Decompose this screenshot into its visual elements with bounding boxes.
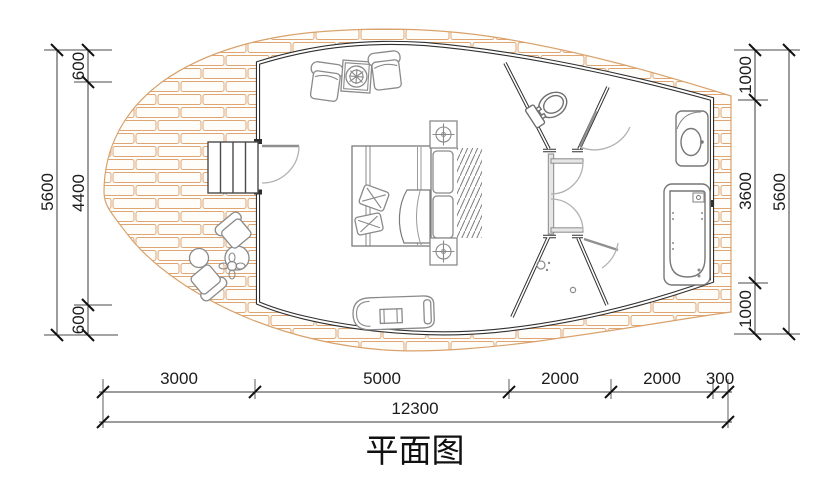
dim-bottom-2000-b: 2000 bbox=[643, 369, 681, 388]
dim-left-5600: 5600 bbox=[38, 173, 57, 211]
dim-right-5600: 5600 bbox=[770, 173, 789, 211]
headboard-cushion bbox=[433, 151, 453, 193]
dim-bottom-5000: 5000 bbox=[363, 369, 401, 388]
floor-plan-svg: 600 4400 600 5600 1000 3600 1000 5600 30… bbox=[0, 0, 837, 496]
dim-left-600-top: 600 bbox=[69, 52, 88, 80]
dim-right-1000-bottom: 1000 bbox=[736, 290, 755, 328]
double-bed bbox=[352, 146, 453, 246]
dim-bottom-300: 300 bbox=[706, 369, 734, 388]
dim-right-1000-top: 1000 bbox=[736, 56, 755, 94]
nightstand-bottom bbox=[430, 238, 457, 265]
entry-steps bbox=[208, 142, 258, 193]
side-table bbox=[341, 60, 372, 93]
dim-bottom-3000: 3000 bbox=[160, 369, 198, 388]
dim-bottom-12300: 12300 bbox=[391, 399, 438, 418]
dim-right-3600: 3600 bbox=[736, 172, 755, 210]
wash-basin bbox=[676, 111, 708, 166]
bedside-rug bbox=[457, 148, 482, 238]
dimension-right: 1000 3600 1000 5600 bbox=[734, 44, 800, 340]
headboard-cushion bbox=[433, 196, 453, 238]
nightstand-top bbox=[430, 121, 457, 148]
chaise-lounge bbox=[352, 296, 434, 331]
blanket bbox=[399, 190, 430, 243]
dimension-bottom: 3000 5000 2000 2000 300 12300 bbox=[97, 369, 734, 428]
floor-plan-page: 600 4400 600 5600 1000 3600 1000 5600 30… bbox=[0, 0, 837, 496]
drawing-title: 平面图 bbox=[366, 432, 465, 469]
bathtub bbox=[664, 184, 710, 285]
dim-bottom-2000-a: 2000 bbox=[541, 369, 579, 388]
dim-left-600-bottom: 600 bbox=[69, 306, 88, 334]
dim-left-4400: 4400 bbox=[69, 174, 88, 212]
